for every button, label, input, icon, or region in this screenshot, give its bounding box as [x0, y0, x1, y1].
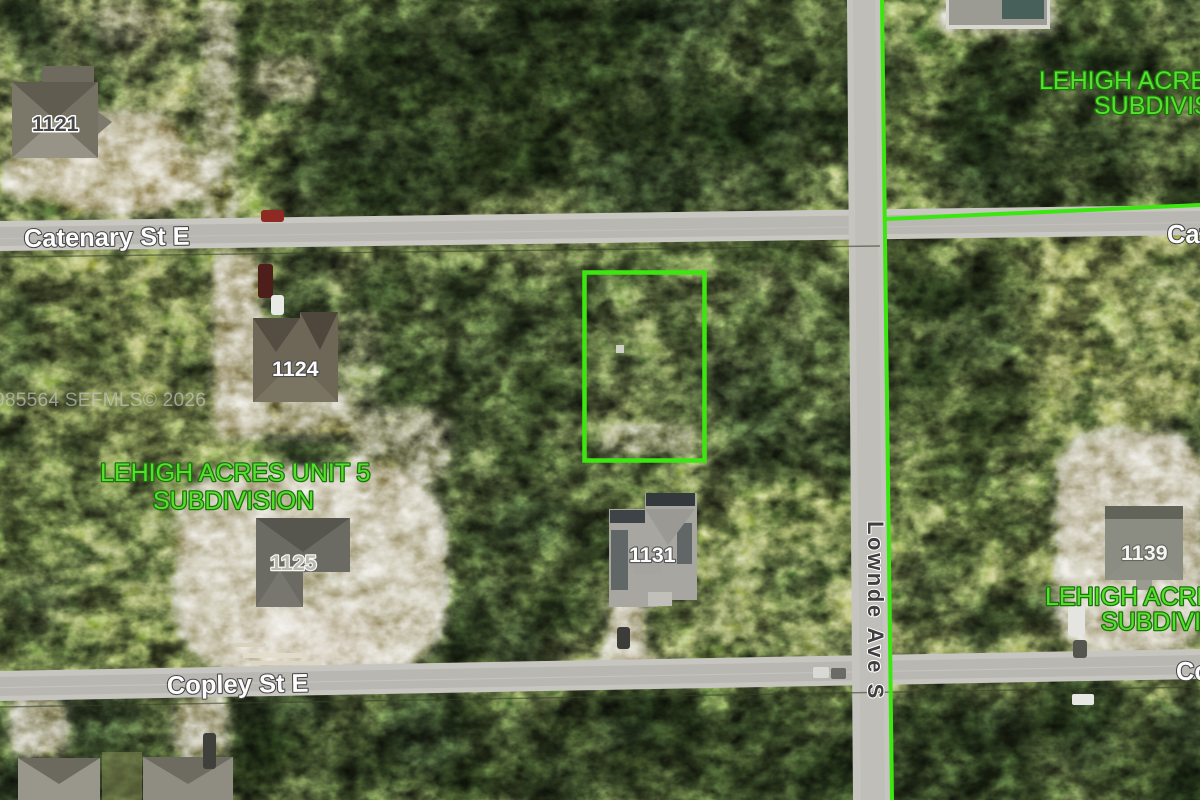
svg-text:1121: 1121: [32, 112, 79, 136]
svg-text:LEHIGH ACRES: LEHIGH ACRES: [1045, 583, 1200, 611]
svg-text:Co: Co: [1176, 658, 1200, 686]
svg-text:SUBDIVISION: SUBDIVISION: [153, 487, 314, 515]
svg-text:LEHIGH ACRES: LEHIGH ACRES: [1039, 67, 1200, 95]
svg-text:SUBDIVISION: SUBDIVISION: [1094, 92, 1200, 120]
svg-text:1124: 1124: [272, 357, 319, 381]
svg-text:SUBDIVISION: SUBDIVISION: [1101, 608, 1200, 636]
svg-text:Lownde Ave S: Lownde Ave S: [863, 521, 888, 701]
svg-text:1125: 1125: [270, 551, 317, 575]
svg-text:LEHIGH ACRES UNIT 5: LEHIGH ACRES UNIT 5: [100, 459, 370, 487]
svg-text:Catenary St E: Catenary St E: [24, 223, 190, 253]
svg-text:Copley St E: Copley St E: [167, 670, 309, 700]
svg-text:Cat: Cat: [1167, 221, 1200, 249]
svg-text:1139: 1139: [1121, 541, 1168, 565]
svg-text:1131: 1131: [629, 543, 676, 567]
svg-text:985564 SEFMLS© 2026: 985564 SEFMLS© 2026: [0, 390, 206, 411]
